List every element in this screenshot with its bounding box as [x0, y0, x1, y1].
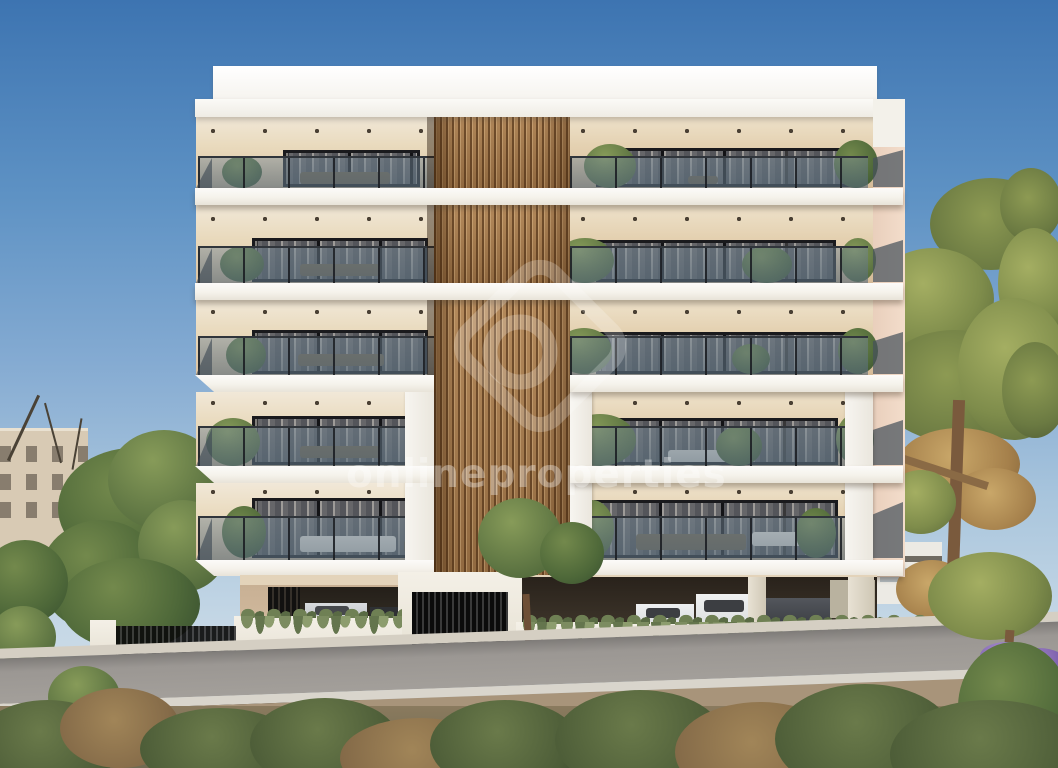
watermark-house-pin-logo: [440, 248, 640, 458]
floor5-balustrade-left: [198, 156, 434, 188]
soffit-downlights: [210, 309, 425, 316]
floor5-balustrade-right: [570, 156, 868, 188]
soffit-downlights: [580, 216, 862, 223]
car-white-suv-windows: [704, 600, 744, 612]
floor1-balustrade-right: [570, 516, 868, 560]
soffit-downlights: [210, 400, 425, 407]
soffit-downlights: [210, 216, 425, 223]
roof-slab: [213, 66, 877, 99]
roof-fascia: [195, 99, 895, 117]
front-tree-canopy: [540, 522, 604, 584]
architectural-rendering: onlineproperties: [0, 0, 1058, 768]
roof-fascia-side: [873, 99, 905, 147]
floor4-balustrade-left: [198, 246, 434, 283]
soffit-downlights: [210, 128, 425, 135]
round-tree-canopy: [928, 552, 1052, 640]
slab-floor3-left: [195, 375, 434, 392]
floor1-balustrade-left: [198, 516, 434, 560]
slab-floor1-right: [570, 560, 903, 576]
wood-slat-panel-top: [434, 108, 570, 188]
soffit-downlights: [580, 128, 862, 135]
slab-floor5: [195, 188, 903, 205]
watermark-text: onlineproperties: [346, 452, 727, 497]
floor3-balustrade-left: [198, 336, 434, 375]
